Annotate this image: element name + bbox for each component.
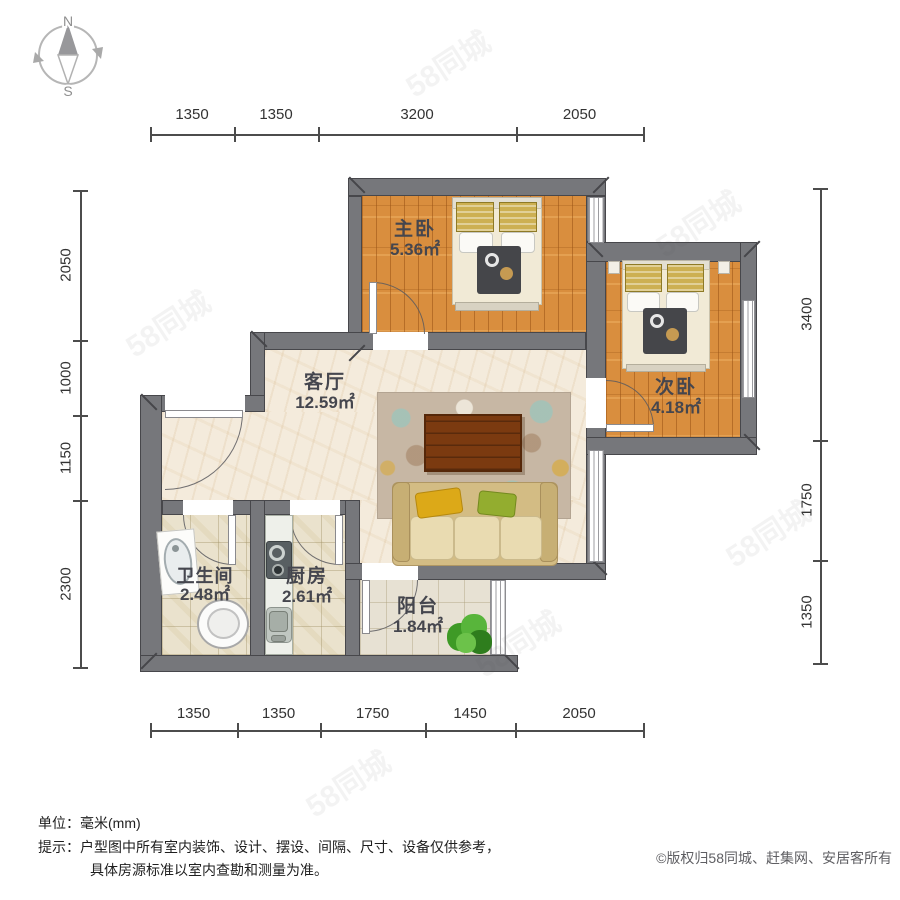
room-area: 4.18㎡ <box>651 399 701 417</box>
dimension-label: 1350 <box>799 595 816 628</box>
window <box>490 580 506 655</box>
dimension-label: 1350 <box>262 705 295 722</box>
dimension-tick <box>73 340 88 342</box>
dimension-label: 1350 <box>175 106 208 123</box>
bed-tray-dish <box>666 328 679 341</box>
bed-blanket-pillow <box>456 202 494 232</box>
toilet-bowl <box>207 608 240 639</box>
wall-segment <box>250 500 265 672</box>
footer-tip-line1: 提示：户型图中所有室内装饰、设计、摆设、间隔、尺寸、设备仅供参考， <box>38 837 500 857</box>
dimension-tick <box>150 127 152 142</box>
wall-segment <box>348 178 606 196</box>
bed-blanket-pillow <box>667 264 704 292</box>
sofa-arm <box>540 482 558 562</box>
watermark: 58同城 <box>396 18 498 106</box>
bed-foot-bench <box>455 302 539 311</box>
bed-foot-bench <box>626 364 706 372</box>
wall-segment <box>348 196 362 350</box>
dimension-tick <box>813 188 828 190</box>
room-label-kitchen: 厨房 2.61㎡ <box>282 567 332 606</box>
compass-north-label: N <box>63 13 73 29</box>
dimension-label: 1350 <box>177 705 210 722</box>
wall-segment <box>140 655 518 672</box>
floorplan-page: N S 135013503200205013501350175014502050… <box>0 0 900 900</box>
dimension-tick <box>813 560 828 562</box>
door-leaf <box>335 515 343 565</box>
room-label-master-bedroom: 主卧 5.36㎡ <box>390 220 440 259</box>
window <box>588 450 604 562</box>
room-area: 5.36㎡ <box>390 241 440 259</box>
wall-segment <box>345 500 360 672</box>
dimension-line <box>820 188 822 663</box>
dimension-tick <box>813 440 828 442</box>
footer-unit-value: 毫米(mm) <box>80 815 141 831</box>
room-name: 主卧 <box>390 220 440 241</box>
door-opening <box>586 378 606 428</box>
dimension-tick <box>643 127 645 142</box>
sofa-pillow-green <box>477 490 517 518</box>
bed-tray-dish <box>500 267 513 280</box>
dimension-label: 1450 <box>453 705 486 722</box>
nightstand <box>718 261 730 274</box>
dimension-tick <box>150 723 152 738</box>
dimension-tick <box>516 127 518 142</box>
door-opening <box>373 332 428 350</box>
dimension-label: 1150 <box>58 441 75 473</box>
wall-segment <box>586 437 757 455</box>
faucet-icon <box>271 635 286 642</box>
door-leaf <box>362 580 370 634</box>
dimension-label: 1750 <box>799 483 816 516</box>
dimension-line <box>150 730 643 732</box>
bed-tray <box>477 246 521 294</box>
room-area: 12.59㎡ <box>295 394 355 412</box>
dimension-tick <box>73 500 88 502</box>
footer-copyright: ©版权归58同城、赶集网、安居客所有 <box>656 848 892 868</box>
bed-tray-ring <box>485 253 499 267</box>
dimension-line <box>80 190 82 667</box>
room-name: 阳台 <box>393 597 443 618</box>
window <box>742 300 755 398</box>
dimension-label: 3200 <box>400 106 433 123</box>
sofa-arm <box>392 482 410 562</box>
room-label-second-bedroom: 次卧 4.18㎡ <box>651 378 701 417</box>
sofa-cushion <box>500 516 542 560</box>
compass-needle-south-icon <box>58 55 78 84</box>
bed-tray-ring <box>650 314 664 328</box>
dimension-tick <box>515 723 517 738</box>
door-leaf <box>228 515 236 565</box>
room-label-balcony: 阳台 1.84㎡ <box>393 597 443 636</box>
door-leaf <box>369 282 377 334</box>
room-name: 卫生间 <box>177 567 234 586</box>
room-label-living-room: 客厅 12.59㎡ <box>295 373 355 412</box>
dimension-tick <box>425 723 427 738</box>
room-area: 1.84㎡ <box>393 618 443 636</box>
door-opening <box>290 500 340 515</box>
bed-blanket-pillow <box>499 202 537 232</box>
dimension-label: 2050 <box>563 106 596 123</box>
footer-unit-label: 单位： <box>38 815 80 831</box>
bed-tray <box>643 308 687 354</box>
dimension-tick <box>73 190 88 192</box>
bed-blanket-pillow <box>625 264 662 292</box>
dimension-tick <box>237 723 239 738</box>
compass: N S <box>22 8 114 100</box>
dimension-label: 1750 <box>356 705 389 722</box>
plant-icon <box>456 633 476 653</box>
room-name: 次卧 <box>651 378 701 399</box>
dimension-line <box>150 134 643 136</box>
dimension-label: 2050 <box>562 705 595 722</box>
window <box>588 197 604 243</box>
room-label-bathroom: 卫生间 2.48㎡ <box>177 567 234 605</box>
dimension-tick <box>73 667 88 669</box>
watermark: 58同城 <box>116 278 218 366</box>
coffee-table <box>424 414 522 472</box>
dimension-tick <box>813 663 828 665</box>
footer-tip-line2: 具体房源标准以室内查勘和测量为准。 <box>90 860 328 880</box>
door-leaf <box>165 410 243 418</box>
compass-south-label: S <box>63 83 72 99</box>
dimension-tick <box>318 127 320 142</box>
nightstand <box>608 261 620 274</box>
sofa-cushion <box>410 516 454 560</box>
footer-tip-label: 提示： <box>38 839 80 855</box>
door-leaf <box>606 424 654 432</box>
dimension-tick <box>73 415 88 417</box>
sofa-cushion <box>454 516 500 560</box>
dimension-tick <box>643 723 645 738</box>
dimension-label: 1350 <box>259 106 292 123</box>
stove-burner <box>269 545 285 561</box>
kitchen-sink-basin <box>269 611 288 632</box>
wall-segment <box>586 242 757 262</box>
footer-unit-line: 单位：毫米(mm) <box>38 813 141 833</box>
room-area: 2.61㎡ <box>282 588 332 606</box>
dimension-tick <box>234 127 236 142</box>
door-opening <box>183 500 233 515</box>
dimension-label: 3400 <box>799 297 816 330</box>
faucet-icon <box>172 545 179 552</box>
dimension-label: 2300 <box>58 567 75 600</box>
room-name: 厨房 <box>282 567 332 588</box>
footer-tip-text2: 具体房源标准以室内查勘和测量为准。 <box>90 862 328 878</box>
dimension-label: 2050 <box>58 248 75 281</box>
watermark: 58同城 <box>296 738 398 826</box>
room-name: 客厅 <box>295 373 355 394</box>
footer-tip-text1: 户型图中所有室内装饰、设计、摆设、间隔、尺寸、设备仅供参考， <box>80 839 500 855</box>
dimension-tick <box>320 723 322 738</box>
room-area: 2.48㎡ <box>177 586 234 604</box>
dimension-label: 1000 <box>58 361 75 394</box>
